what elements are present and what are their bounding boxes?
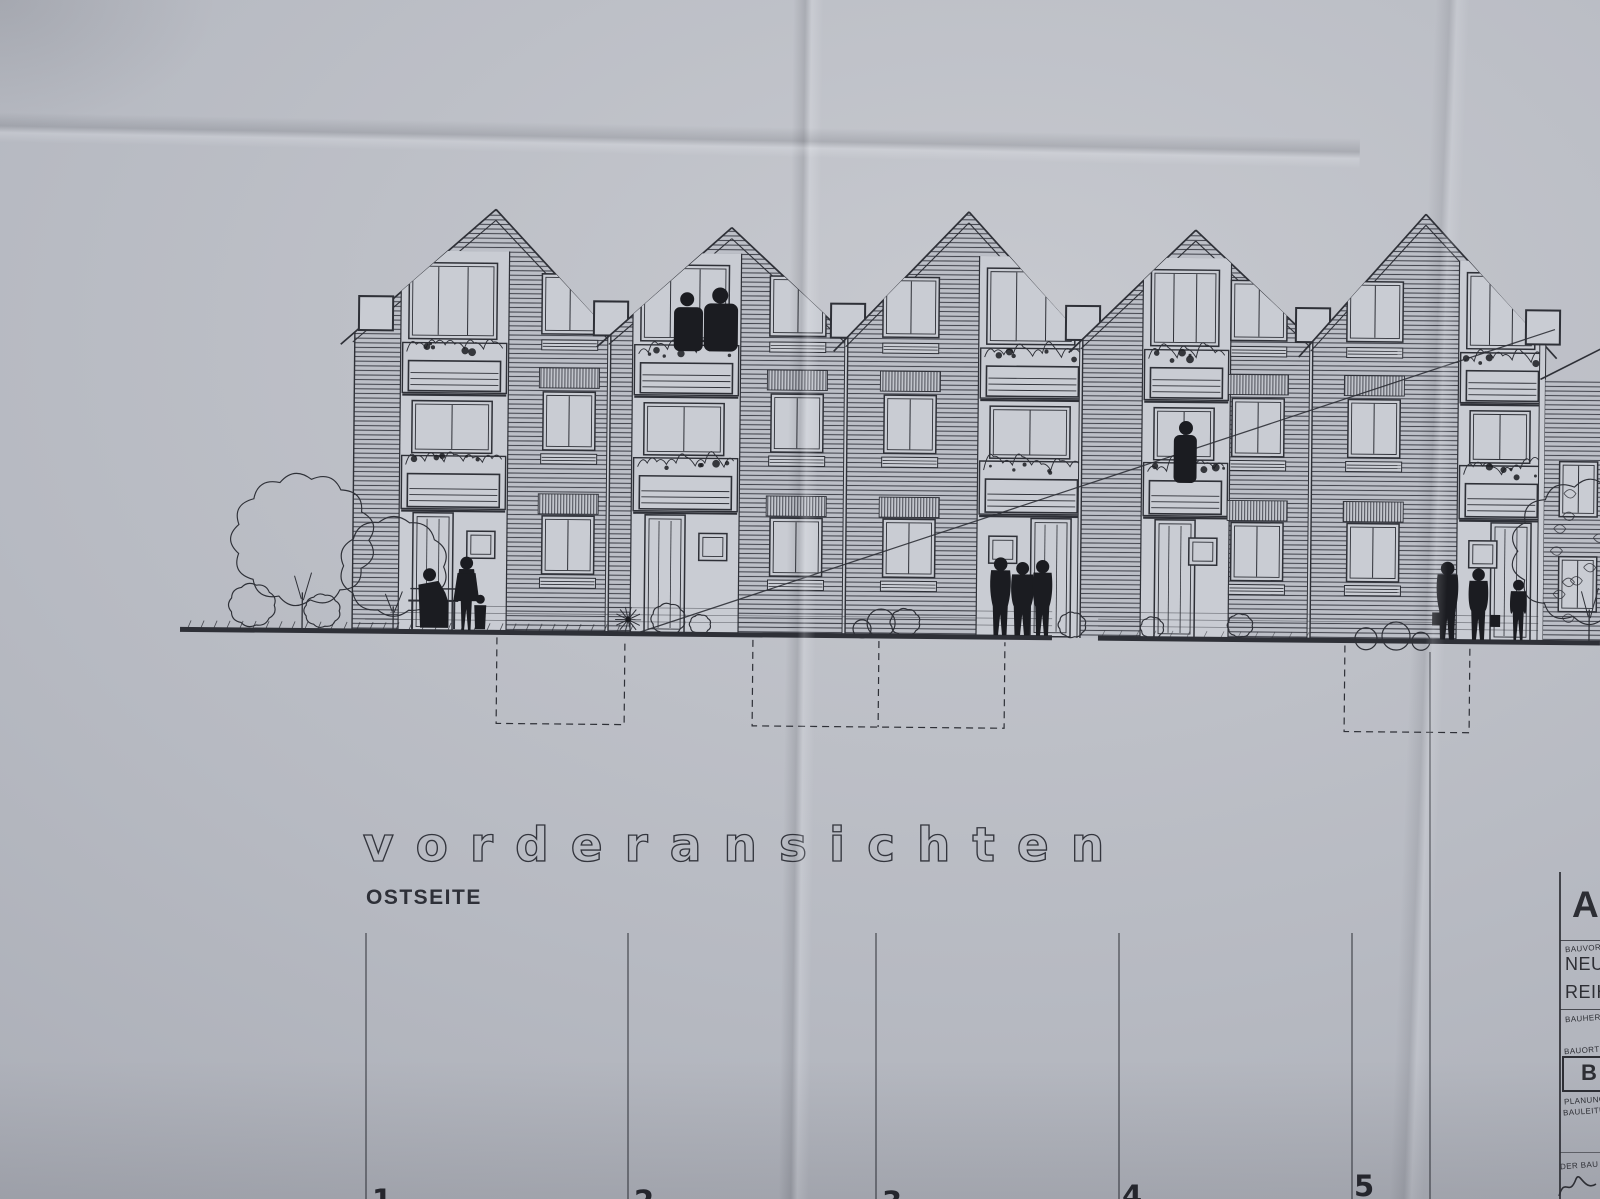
drawing-subtitle: OSTSEITE bbox=[366, 886, 482, 909]
vent-band bbox=[880, 371, 940, 392]
vent-band bbox=[1228, 374, 1288, 395]
small-windows-column bbox=[1226, 280, 1289, 595]
grid-number: 1 bbox=[372, 1183, 392, 1199]
window-sill bbox=[1347, 348, 1403, 359]
window-sill bbox=[1231, 346, 1287, 357]
ground-floor-window bbox=[467, 531, 495, 558]
eave-box bbox=[1526, 310, 1560, 344]
small-windows-column bbox=[765, 276, 828, 591]
balcony bbox=[402, 338, 507, 395]
small-windows-column bbox=[537, 274, 600, 589]
elevation-drawing: vorderansichten OSTSEITE 12345 bbox=[0, 0, 1600, 1199]
window-sill bbox=[880, 581, 936, 592]
window-sill bbox=[1230, 460, 1286, 471]
vent-band bbox=[1343, 502, 1403, 523]
window-sill bbox=[542, 340, 598, 351]
grid-number: 4 bbox=[1122, 1179, 1142, 1199]
photographed-blueprint: vorderansichten OSTSEITE 12345 A BAUVOR … bbox=[0, 0, 1600, 1199]
vent-band bbox=[766, 496, 826, 517]
vent-band bbox=[1227, 500, 1287, 521]
ground-floor-window bbox=[1469, 541, 1497, 568]
grid-numbers: 12345 bbox=[372, 1169, 1374, 1199]
balcony bbox=[633, 451, 738, 514]
lower-grid bbox=[366, 652, 1430, 1199]
balcony bbox=[1459, 457, 1544, 522]
window bbox=[1151, 270, 1220, 347]
balcony bbox=[401, 451, 506, 511]
drawing-title: vorderansichten bbox=[363, 818, 1126, 873]
stacked-openings-column bbox=[398, 250, 510, 632]
house-unit bbox=[1066, 229, 1331, 640]
vent-band bbox=[1344, 376, 1404, 397]
bush-left-2 bbox=[304, 594, 340, 628]
house-unit bbox=[831, 211, 1101, 639]
window-sill bbox=[882, 457, 938, 468]
child bbox=[474, 595, 486, 630]
rotated-drawing bbox=[179, 202, 1600, 734]
vent-band bbox=[539, 368, 599, 389]
elevation-scene bbox=[179, 202, 1600, 1199]
window-sill bbox=[539, 578, 595, 589]
ground-floor-window bbox=[699, 533, 727, 560]
bush-left-1 bbox=[228, 583, 275, 627]
window-sill bbox=[541, 454, 597, 465]
house-unit bbox=[594, 226, 866, 636]
grid-number: 2 bbox=[634, 1184, 654, 1199]
basement-outline bbox=[496, 637, 1470, 732]
window-sill bbox=[1346, 462, 1402, 473]
ground-floor-window bbox=[1189, 538, 1217, 565]
balcony bbox=[980, 341, 1085, 401]
window-sill bbox=[767, 580, 823, 591]
window-sill bbox=[1228, 584, 1284, 595]
window bbox=[409, 263, 498, 340]
vent-band bbox=[767, 370, 827, 391]
balcony bbox=[1144, 342, 1229, 402]
balcony bbox=[979, 454, 1084, 517]
vent-band bbox=[538, 494, 598, 515]
grid-number: 3 bbox=[882, 1185, 902, 1199]
eave-box bbox=[359, 296, 393, 330]
small-windows-column bbox=[878, 277, 941, 592]
window-sill bbox=[883, 343, 939, 354]
house-unit bbox=[338, 208, 629, 634]
window-sill bbox=[769, 456, 825, 467]
window bbox=[987, 268, 1076, 345]
grid-number: 5 bbox=[1354, 1169, 1374, 1199]
window-sill bbox=[770, 342, 826, 353]
window-sill bbox=[1344, 586, 1400, 597]
vent-band bbox=[879, 497, 939, 518]
small-windows-column bbox=[1342, 282, 1405, 597]
